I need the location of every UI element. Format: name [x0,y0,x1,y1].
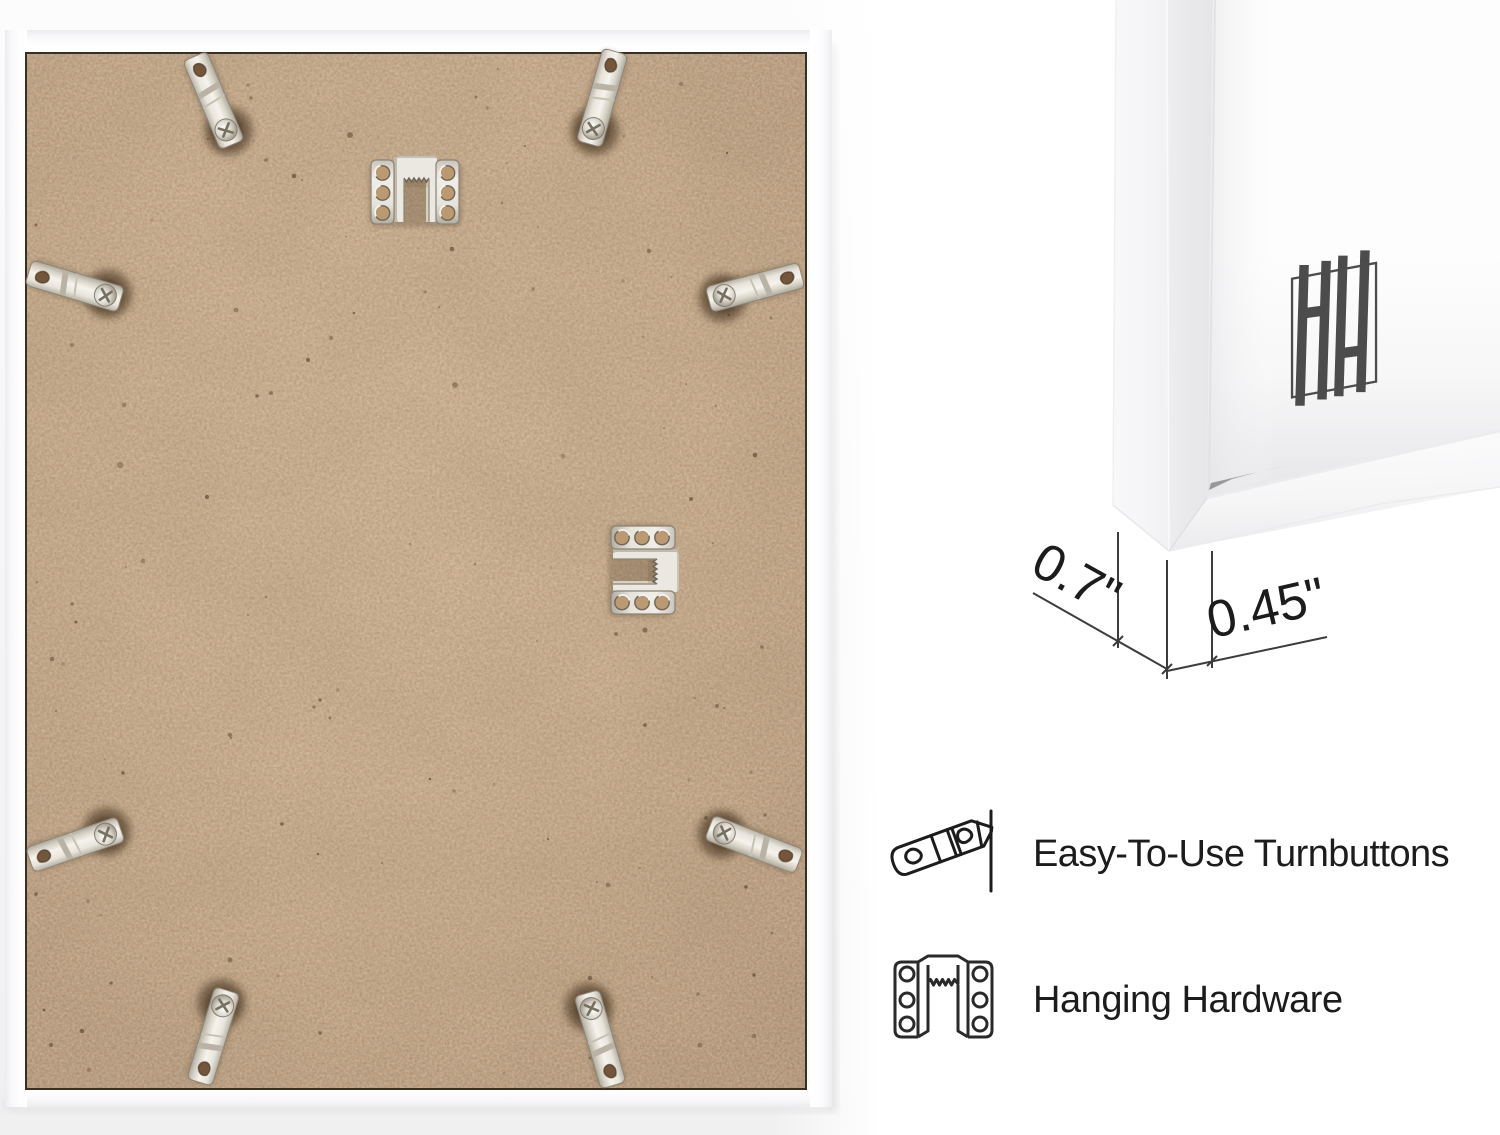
svg-text:Hanging Hardware: Hanging Hardware [1033,979,1343,1021]
svg-text:Easy-To-Use Turnbuttons: Easy-To-Use Turnbuttons [1033,833,1449,875]
